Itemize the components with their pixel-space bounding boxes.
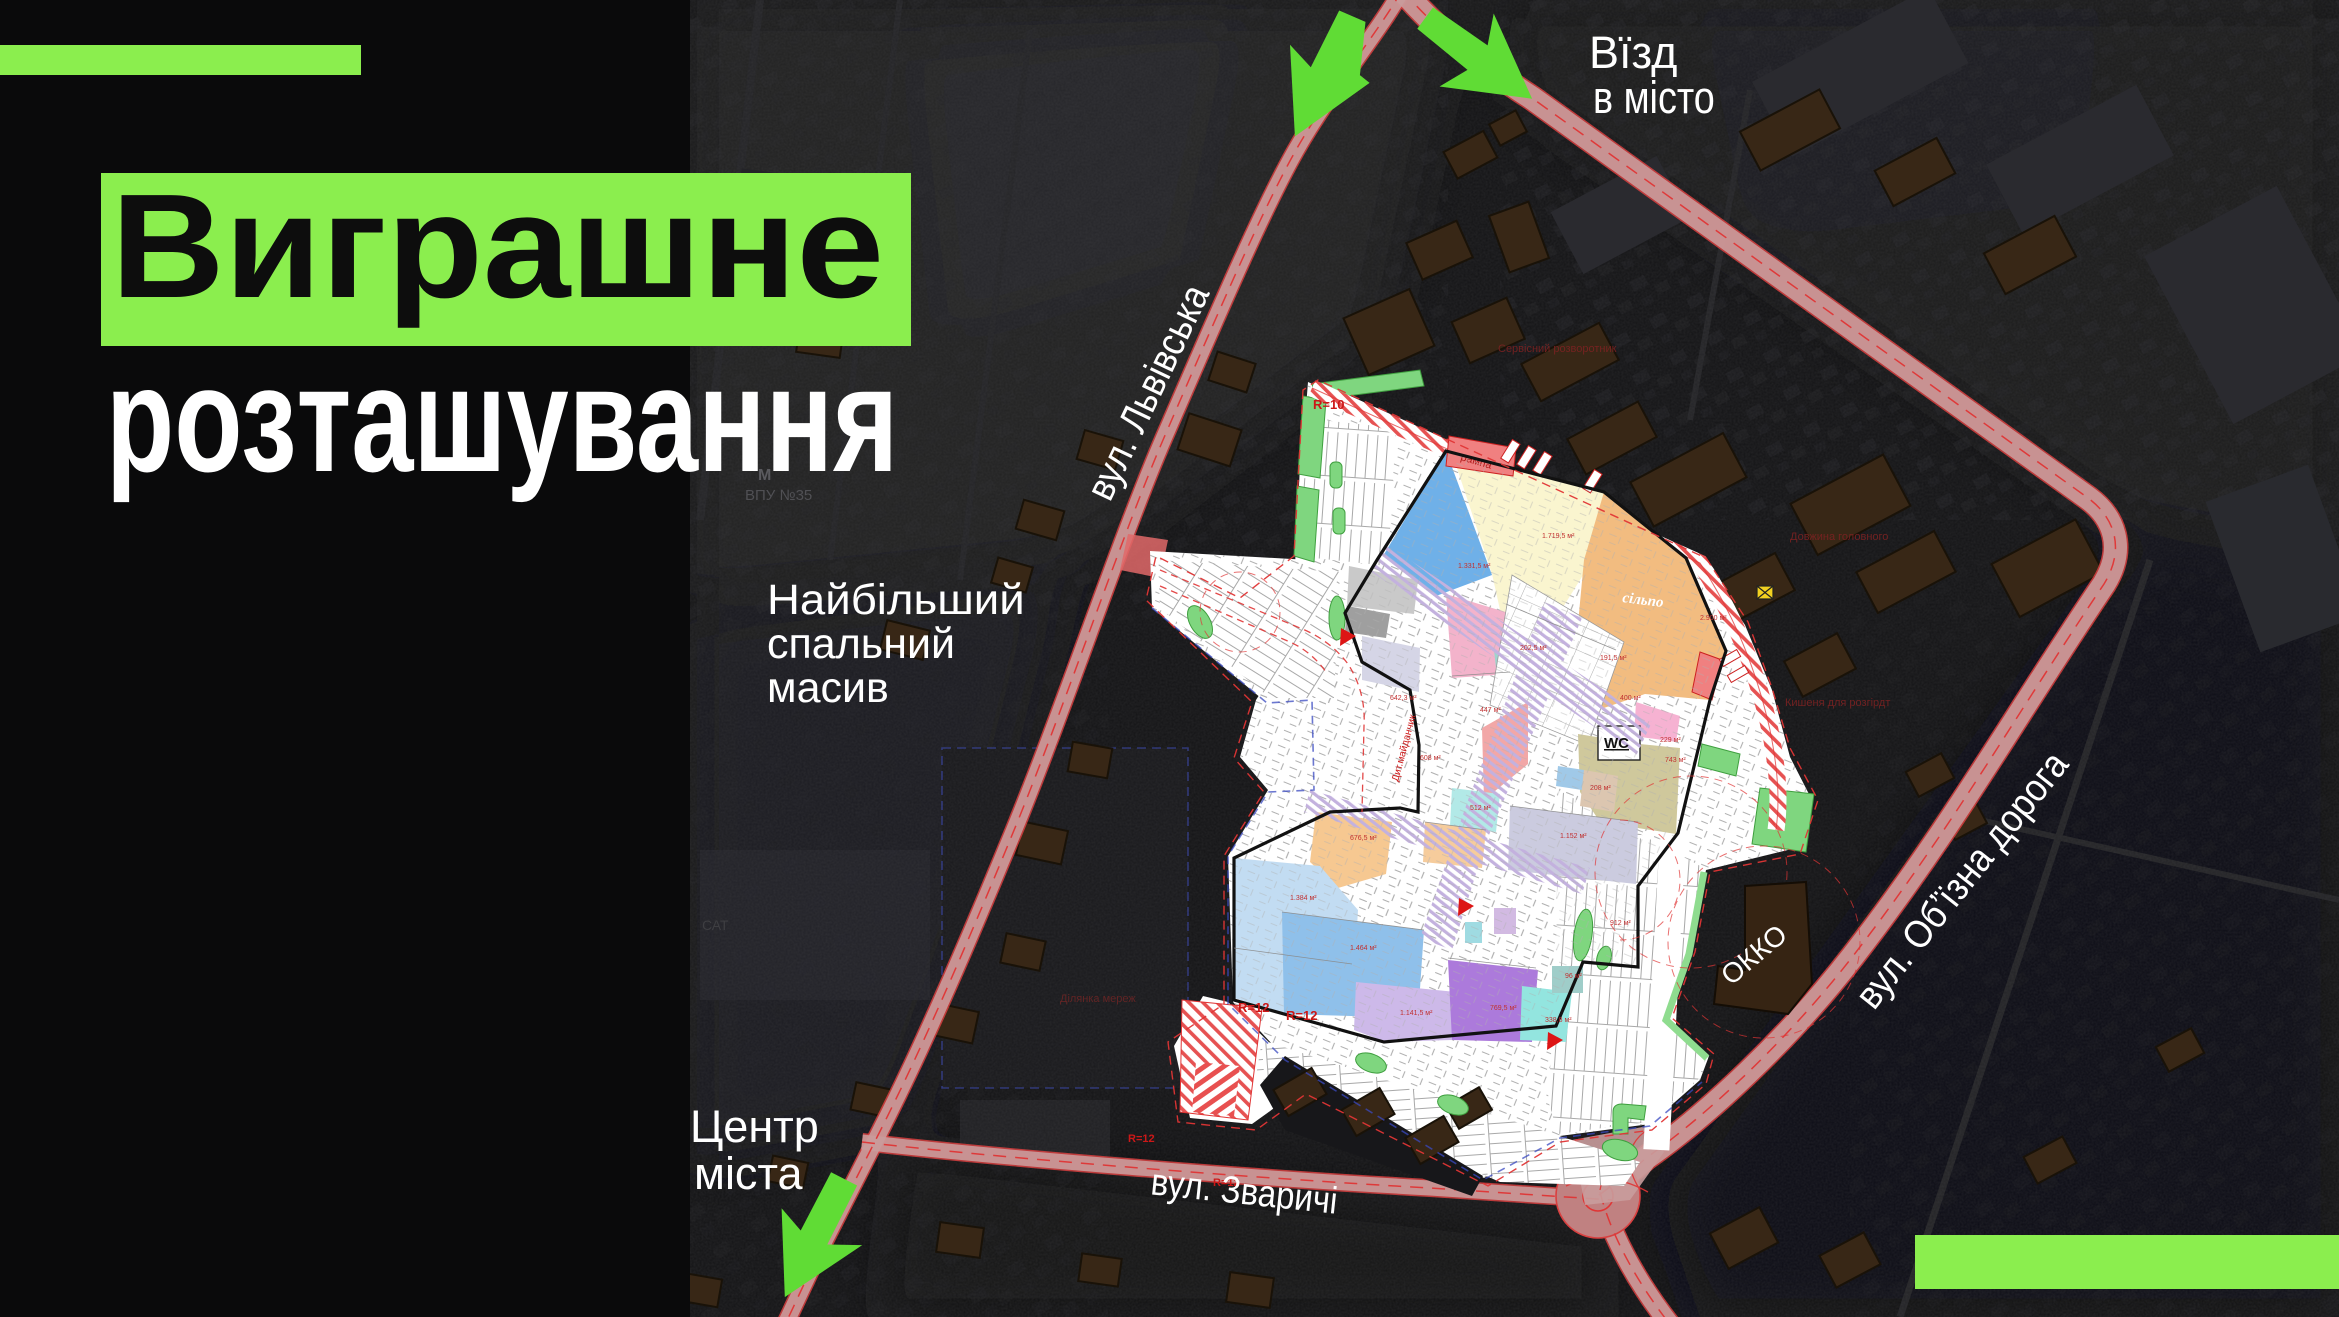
svg-text:R=12: R=12 bbox=[1238, 1000, 1269, 1015]
svg-text:1.152 м²: 1.152 м² bbox=[1560, 833, 1587, 840]
svg-text:R=10: R=10 bbox=[1313, 397, 1344, 412]
svg-text:229 м²: 229 м² bbox=[1660, 737, 1681, 744]
svg-text:масив: масив bbox=[767, 664, 889, 712]
svg-text:608 м²: 608 м² bbox=[1420, 755, 1441, 762]
svg-text:R=12: R=12 bbox=[1286, 1008, 1317, 1023]
svg-text:Центр: Центр bbox=[690, 1101, 819, 1152]
svg-text:Ділянка мереж: Ділянка мереж bbox=[1060, 993, 1136, 1005]
svg-text:2.900 м²: 2.900 м² bbox=[1700, 615, 1727, 622]
svg-text:769,5 м²: 769,5 м² bbox=[1490, 1005, 1517, 1012]
svg-text:1.331,5 м²: 1.331,5 м² bbox=[1458, 563, 1491, 570]
svg-text:Найбільший: Найбільший bbox=[767, 576, 1025, 624]
svg-text:202,5 м²: 202,5 м² bbox=[1520, 645, 1547, 652]
svg-text:Вїзд: Вїзд bbox=[1589, 27, 1677, 78]
svg-text:96 м²: 96 м² bbox=[1565, 973, 1583, 980]
svg-text:1.384 м²: 1.384 м² bbox=[1290, 895, 1317, 902]
svg-text:розташування: розташування bbox=[106, 336, 898, 504]
svg-text:міста: міста bbox=[694, 1148, 804, 1199]
svg-text:400 м²: 400 м² bbox=[1620, 695, 1641, 702]
svg-text:Довжина головного: Довжина головного bbox=[1790, 531, 1888, 543]
svg-text:642,3 м²: 642,3 м² bbox=[1390, 695, 1417, 702]
svg-text:R=12: R=12 bbox=[1128, 1133, 1155, 1145]
svg-text:912 м²: 912 м² bbox=[1610, 920, 1631, 927]
svg-text:676,5 м²: 676,5 м² bbox=[1350, 835, 1377, 842]
svg-text:Сервісний розворотник: Сервісний розворотник bbox=[1498, 343, 1617, 355]
svg-text:1.141,5 м²: 1.141,5 м² bbox=[1400, 1010, 1433, 1017]
svg-text:1.719,5 м²: 1.719,5 м² bbox=[1542, 533, 1575, 540]
svg-text:338,8 м²: 338,8 м² bbox=[1545, 1017, 1572, 1024]
svg-text:191,5 м²: 191,5 м² bbox=[1600, 655, 1627, 662]
svg-text:743 м²: 743 м² bbox=[1665, 757, 1686, 764]
svg-text:512 м²: 512 м² bbox=[1470, 805, 1491, 812]
svg-text:208 м²: 208 м² bbox=[1590, 785, 1611, 792]
svg-text:1.464 м²: 1.464 м² bbox=[1350, 945, 1377, 952]
svg-text:WC: WC bbox=[1604, 735, 1629, 752]
svg-text:спальний: спальний bbox=[767, 620, 955, 668]
svg-text:447 м²: 447 м² bbox=[1480, 707, 1501, 714]
svg-text:в місто: в місто bbox=[1593, 72, 1715, 123]
svg-text:Виграшне: Виграшне bbox=[111, 164, 884, 329]
svg-text:САТ: САТ bbox=[702, 917, 729, 933]
svg-text:Кишеня для розгірдт: Кишеня для розгірдт bbox=[1785, 697, 1890, 709]
